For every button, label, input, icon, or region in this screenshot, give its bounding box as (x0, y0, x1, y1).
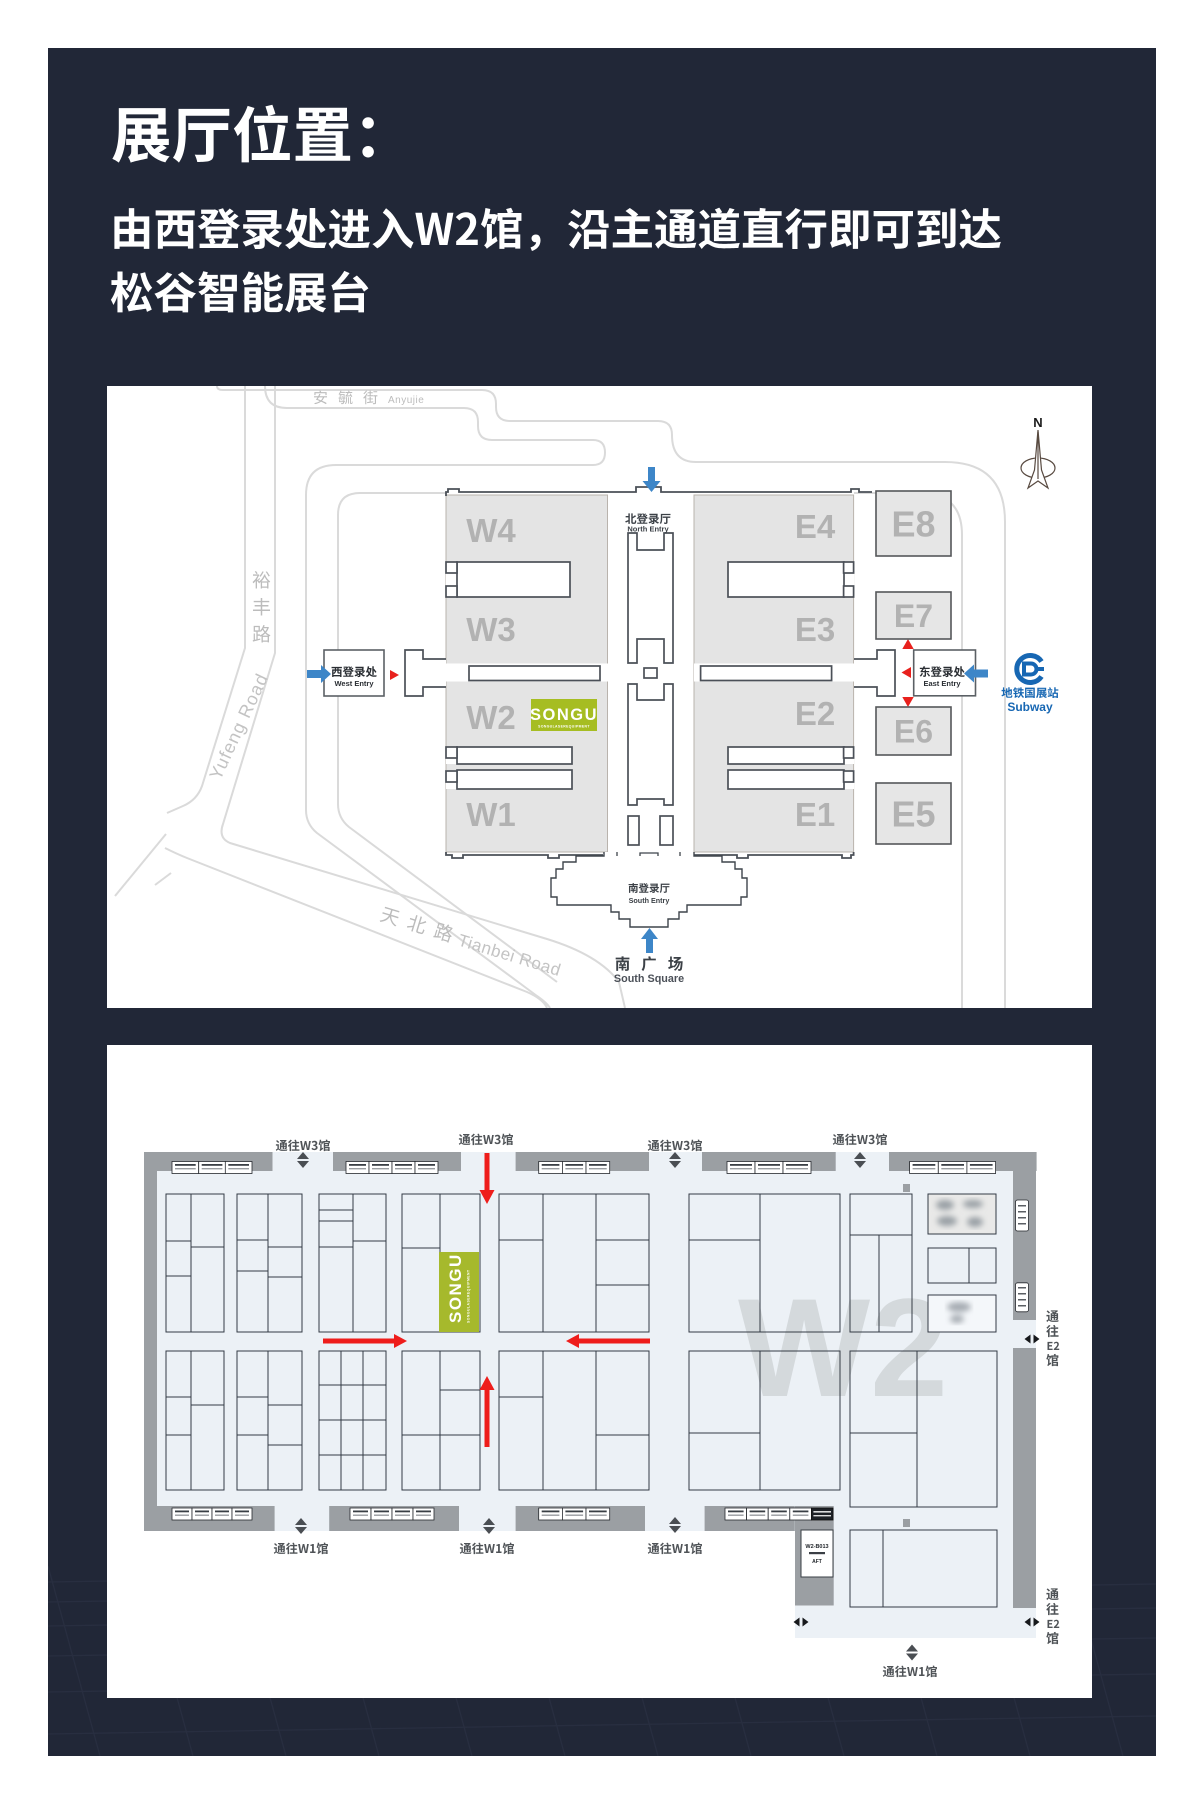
svg-text:W3: W3 (466, 611, 516, 648)
svg-text:SONGULASEREQUIPMENT: SONGULASEREQUIPMENT (538, 725, 590, 729)
svg-text:E7: E7 (894, 598, 933, 634)
svg-text:W1: W1 (466, 796, 516, 833)
svg-text:AFT: AFT (812, 1559, 822, 1565)
svg-text:West Entry: West Entry (334, 679, 374, 688)
svg-text:W4: W4 (466, 512, 516, 549)
svg-text:W2: W2 (466, 699, 516, 736)
svg-text:SONGULASEREQUIPMENT: SONGULASEREQUIPMENT (467, 1269, 471, 1323)
svg-text:Subway: Subway (1007, 700, 1053, 714)
svg-text:E1: E1 (795, 796, 835, 833)
svg-text:E4: E4 (795, 508, 836, 545)
svg-text:South Entry: South Entry (629, 896, 670, 905)
svg-text:South Square: South Square (614, 973, 684, 985)
svg-text:SONGU: SONGU (530, 706, 598, 724)
svg-text:E6: E6 (894, 714, 933, 750)
svg-text:Anyujie: Anyujie (388, 395, 424, 406)
svg-text:E2: E2 (795, 695, 835, 732)
svg-text:East Entry: East Entry (923, 679, 961, 688)
svg-text:SONGU: SONGU (446, 1253, 465, 1323)
svg-text:North Entry: North Entry (627, 525, 669, 534)
svg-text:N: N (1033, 415, 1042, 430)
svg-text:E5: E5 (891, 794, 935, 835)
svg-text:E3: E3 (795, 611, 835, 648)
svg-text:W2-B013: W2-B013 (805, 1544, 828, 1550)
svg-text:Yufeng Road: Yufeng Road (206, 670, 273, 783)
svg-text:E8: E8 (891, 504, 935, 545)
